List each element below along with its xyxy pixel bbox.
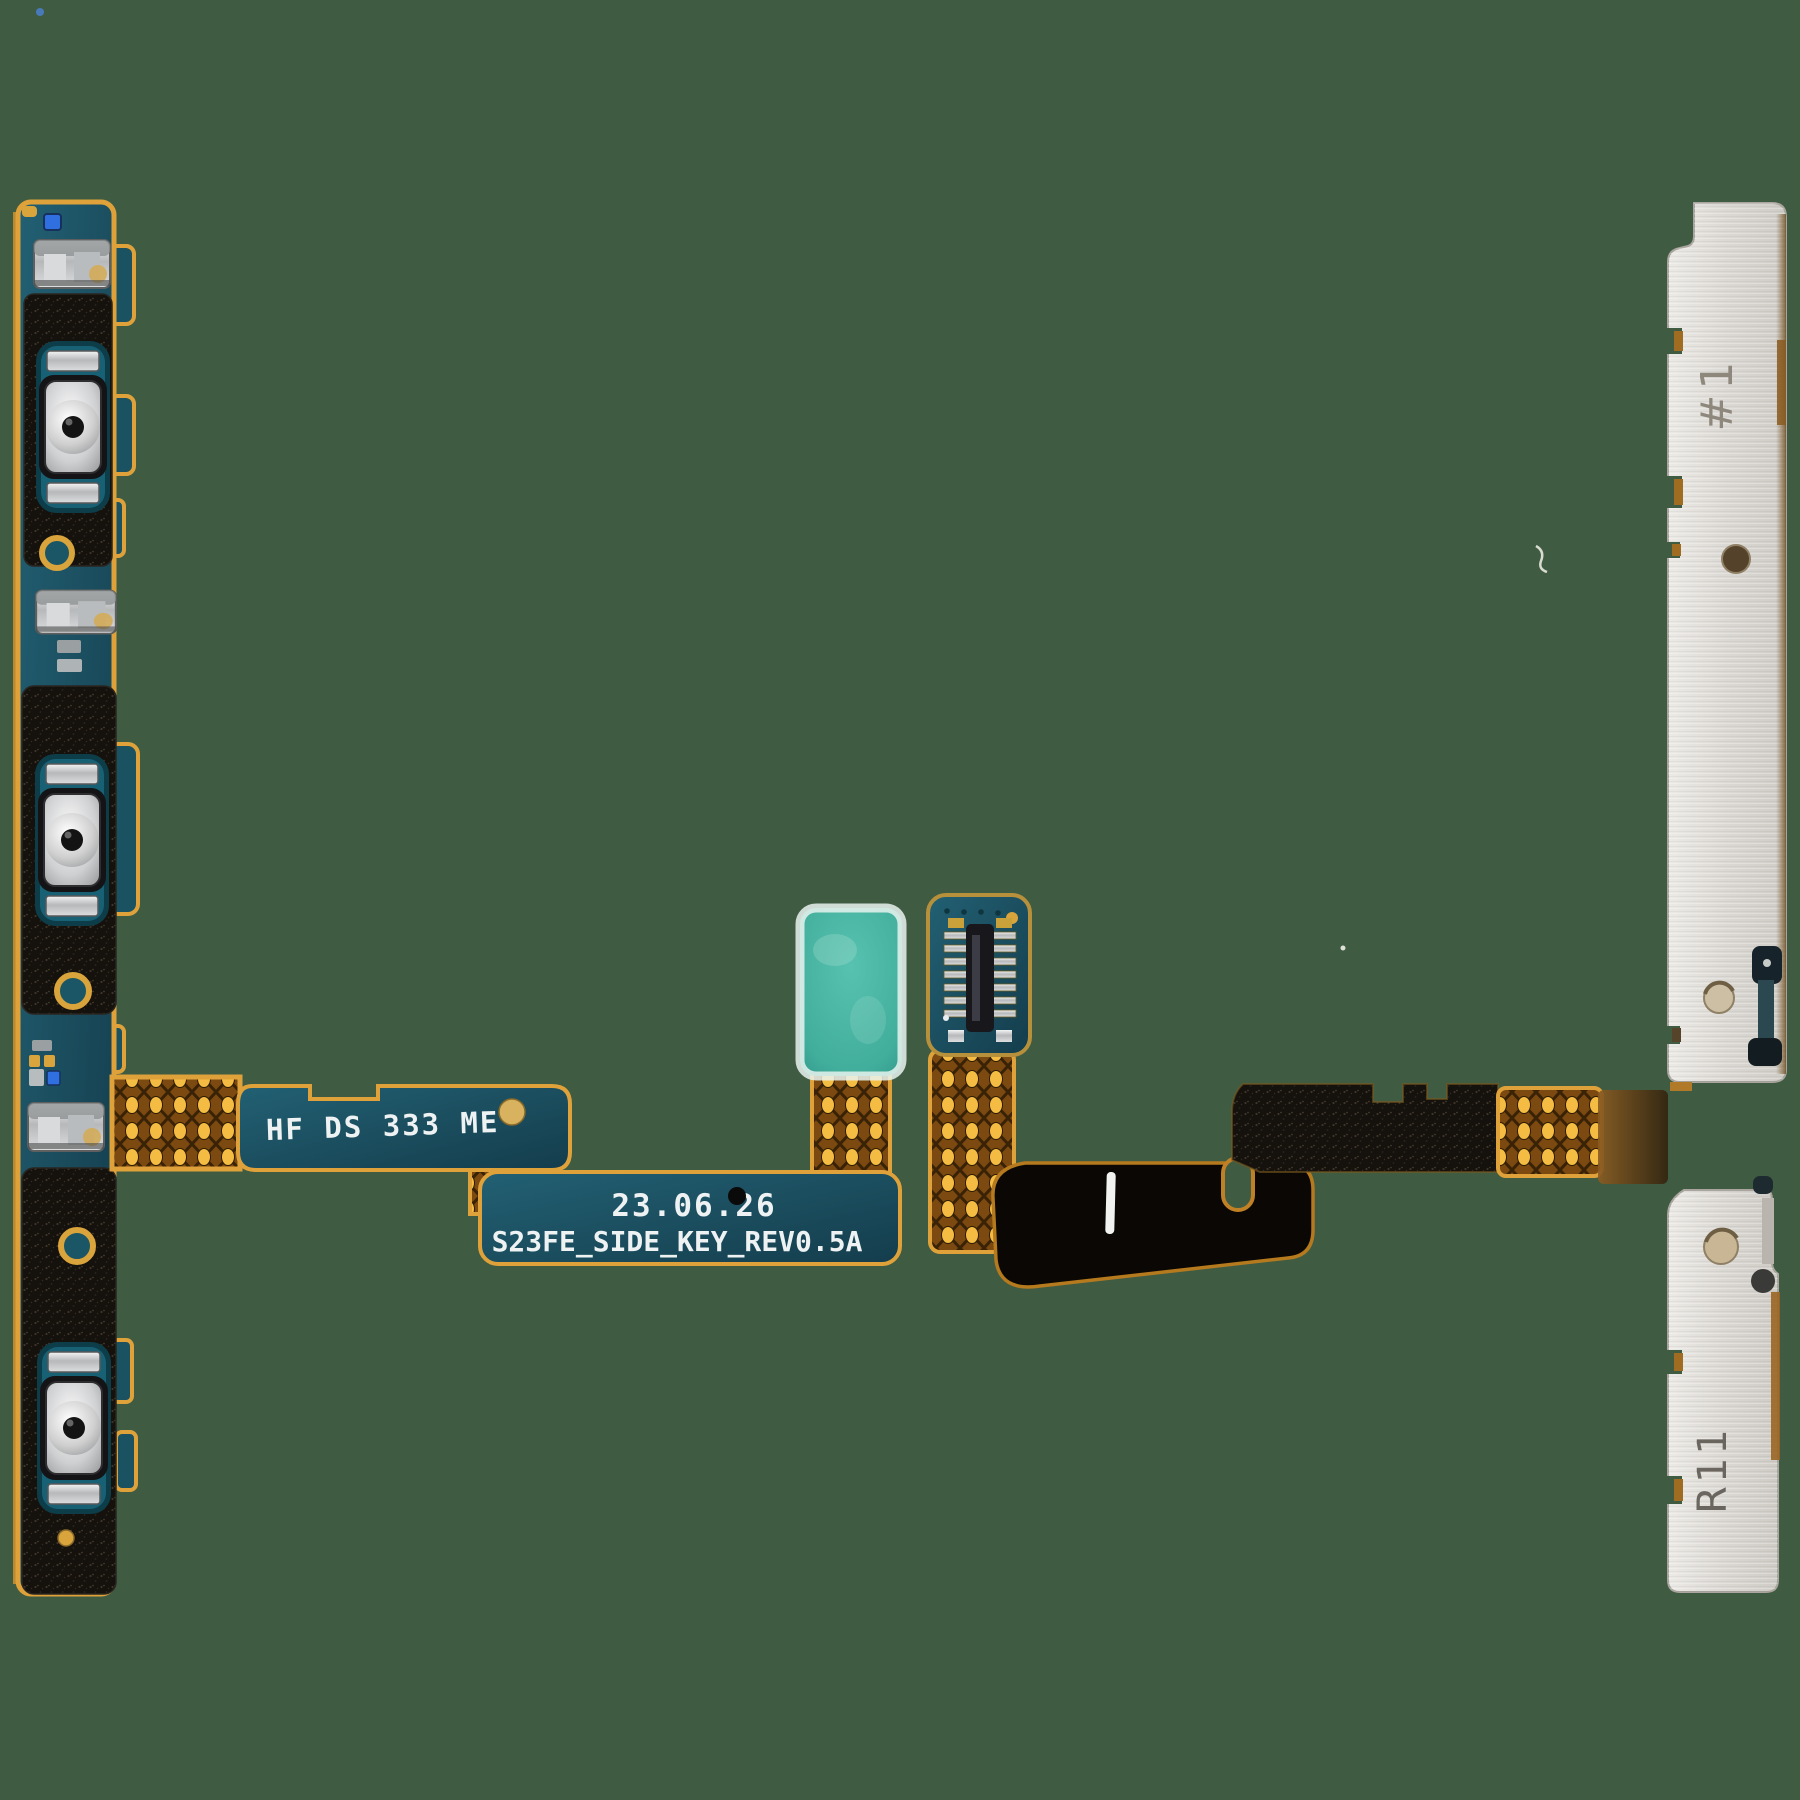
- flex-hatch-right: [1498, 1088, 1602, 1176]
- gold-dot: [58, 1530, 74, 1546]
- bracket-top-marking: #1: [1692, 357, 1743, 432]
- spring-contact-bottom: [28, 1103, 104, 1151]
- knurled-edge-strip: [1762, 1198, 1774, 1264]
- flex-hatch-exit: [112, 1077, 240, 1169]
- bracket-bottom-sliver: [1670, 1082, 1692, 1091]
- b2b-connector-highlight: [972, 935, 980, 1021]
- screw-hole: [57, 975, 89, 1007]
- volume-up-dome-switch: [36, 341, 110, 513]
- dark-blob-top: [1753, 1176, 1773, 1194]
- bracket-edge-notch: [1751, 1269, 1775, 1293]
- solder-pad: [996, 918, 1012, 928]
- blue-chip: [47, 1071, 60, 1085]
- mint-sponge-sticker: [800, 908, 902, 1076]
- bracket-edge-orange-low: [1771, 1292, 1780, 1460]
- white-position-mark: [1105, 1172, 1116, 1234]
- spring-contact-top: [34, 240, 110, 288]
- gold-pad: [29, 1055, 40, 1067]
- via-dot: [944, 908, 950, 914]
- flex-hatch-sticker-column: [812, 1062, 890, 1186]
- metal-bracket: #1 R11: [1660, 203, 1786, 1592]
- blue-chip: [44, 214, 61, 230]
- via-dot: [995, 910, 1001, 916]
- dust-speck: [36, 8, 44, 16]
- screw-hole: [61, 1230, 93, 1262]
- chip: [29, 1069, 44, 1086]
- spring-contact-mid: [36, 590, 116, 633]
- date-code-marking: 23.06.26: [611, 1188, 776, 1224]
- product-photo: HF DS 333 ME 23.06.26 S23FE_SIDE_KEY_REV…: [0, 0, 1800, 1800]
- solder-pad: [948, 918, 964, 928]
- dust-dot: [1341, 946, 1346, 951]
- via-dot: [961, 909, 967, 915]
- power-flex-foam: [1232, 1084, 1498, 1172]
- bracket-hole-top: [1722, 545, 1750, 573]
- via-dot: [943, 1015, 949, 1021]
- sticker-texture: [850, 996, 886, 1044]
- flex-bracket-junction-shadow: [1598, 1090, 1668, 1184]
- gold-pad: [499, 1099, 525, 1125]
- bracket-edge-orange: [1777, 340, 1786, 425]
- solder-pad: [948, 1030, 964, 1042]
- model-code-marking: S23FE_SIDE_KEY_REV0.5A: [492, 1225, 863, 1258]
- screw-hole: [42, 538, 72, 568]
- resistor: [57, 640, 81, 653]
- bracket-bottom-marking: R11: [1690, 1426, 1736, 1514]
- board-connector-pcb: [928, 895, 1030, 1055]
- chip: [32, 1040, 52, 1051]
- sticker-texture: [813, 934, 857, 966]
- background: [0, 0, 1800, 1800]
- ink-dot: [728, 1187, 746, 1205]
- via-dot: [978, 909, 984, 915]
- gold-pad: [44, 1055, 55, 1067]
- solder-pad: [996, 1030, 1012, 1042]
- flex-cable-scene: HF DS 333 ME 23.06.26 S23FE_SIDE_KEY_REV…: [0, 0, 1800, 1800]
- volume-down-dome-switch: [35, 754, 109, 926]
- volume-flex-module: [13, 202, 138, 1594]
- solder-blob: [22, 206, 37, 217]
- bottom-dome-switch: [37, 1342, 111, 1514]
- resistor: [57, 659, 82, 672]
